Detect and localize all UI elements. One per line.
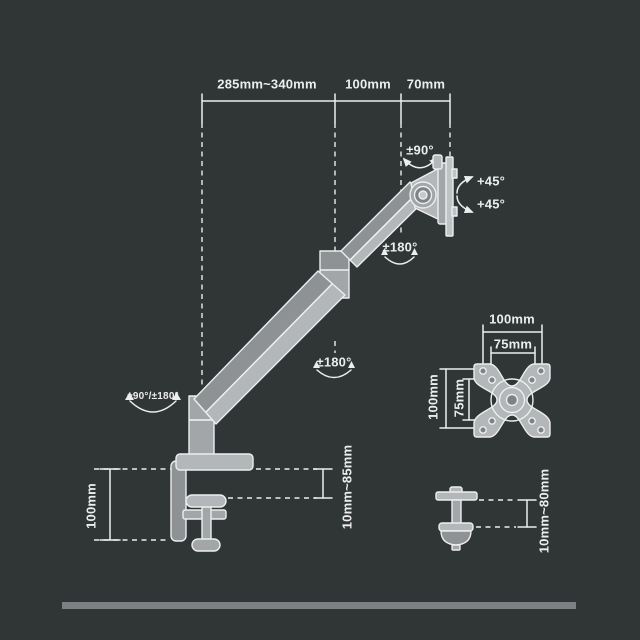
dim-label-vesa-outer-height: 100mm <box>427 374 440 420</box>
dim-label-arm-reach: 285mm~340mm <box>217 78 316 91</box>
ground-bar <box>62 602 576 609</box>
elbow-swivel-arc <box>317 370 351 378</box>
angle-label-elbow-swivel: ±180° <box>316 356 351 369</box>
vesa-rotate-up-arc <box>457 177 472 193</box>
dim-label-grommet-thickness: 10mm~80mm <box>538 469 551 554</box>
clamp-back-plate <box>171 461 186 541</box>
base-swivel-arc <box>130 401 176 412</box>
dim-label-head-depth: 70mm <box>407 78 445 91</box>
monitor-arm-illustration <box>171 155 457 551</box>
angle-label-monitor-tilt: ±90° <box>406 144 434 157</box>
head-swivel-arc <box>385 257 414 264</box>
grommet-foot <box>441 531 471 545</box>
dim-label-vesa-outer-width: 100mm <box>489 313 535 326</box>
monitor-tilt-arc <box>404 158 437 168</box>
angle-label-head-swivel: ±180° <box>382 241 417 254</box>
lower-arm-segment <box>194 271 345 424</box>
dim-label-forearm-length: 100mm <box>345 78 391 91</box>
grommet-washer <box>439 523 473 531</box>
clamp-knob <box>192 539 220 551</box>
head-pin <box>433 155 442 169</box>
dim-label-vesa-inner-height: 75mm <box>453 379 466 417</box>
dim-label-clamp-height: 100mm <box>85 483 98 529</box>
clamp-base <box>176 454 253 470</box>
grommet-mount-detail <box>436 487 477 550</box>
monitor-arm-spec-diagram: 285mm~340mm 100mm 70mm ±90° +45° +45° ±1… <box>0 0 640 640</box>
angle-label-vesa-cw: +45° <box>477 175 505 188</box>
clamp-screw-shaft <box>202 505 211 542</box>
vesa-plate-detail <box>474 364 550 437</box>
vesa-center-hole <box>507 395 518 406</box>
angle-label-vesa-ccw: +45° <box>477 198 505 211</box>
grommet-top-plate <box>436 492 477 500</box>
clamp-desk-pad <box>186 495 226 507</box>
dim-label-vesa-inner-width: 75mm <box>494 338 532 351</box>
dim-label-desk-thickness: 10mm~85mm <box>341 445 354 530</box>
angle-label-base-swivel: ±90°/±180° <box>127 392 179 402</box>
vesa-rotate-down-arc <box>457 196 472 212</box>
